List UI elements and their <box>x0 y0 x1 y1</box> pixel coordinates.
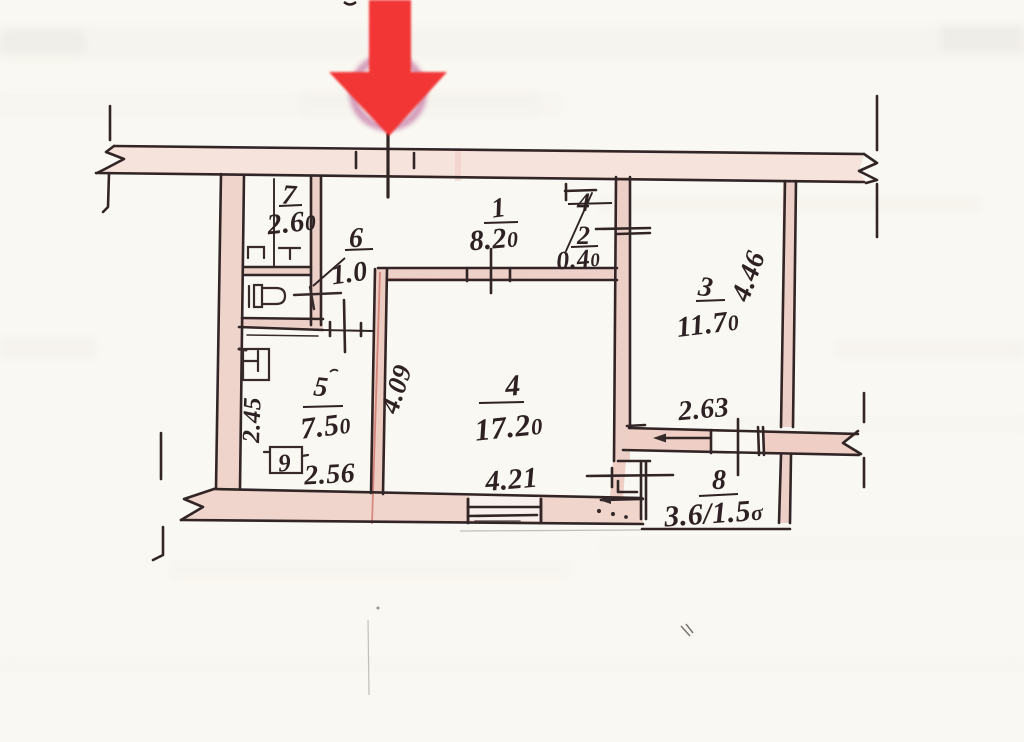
svg-text:1.0: 1.0 <box>329 256 369 292</box>
svg-text:8: 8 <box>712 465 727 496</box>
svg-text:2.63: 2.63 <box>676 392 731 427</box>
svg-text:4.21: 4.21 <box>483 462 539 499</box>
svg-text:2.56: 2.56 <box>302 458 356 492</box>
svg-text:4: 4 <box>503 369 522 403</box>
svg-text:9: 9 <box>277 450 292 478</box>
svg-text:2.45: 2.45 <box>238 397 267 445</box>
svg-text:3.6/1.5σ: 3.6/1.5σ <box>662 494 765 534</box>
svg-text:4: 4 <box>576 188 591 217</box>
